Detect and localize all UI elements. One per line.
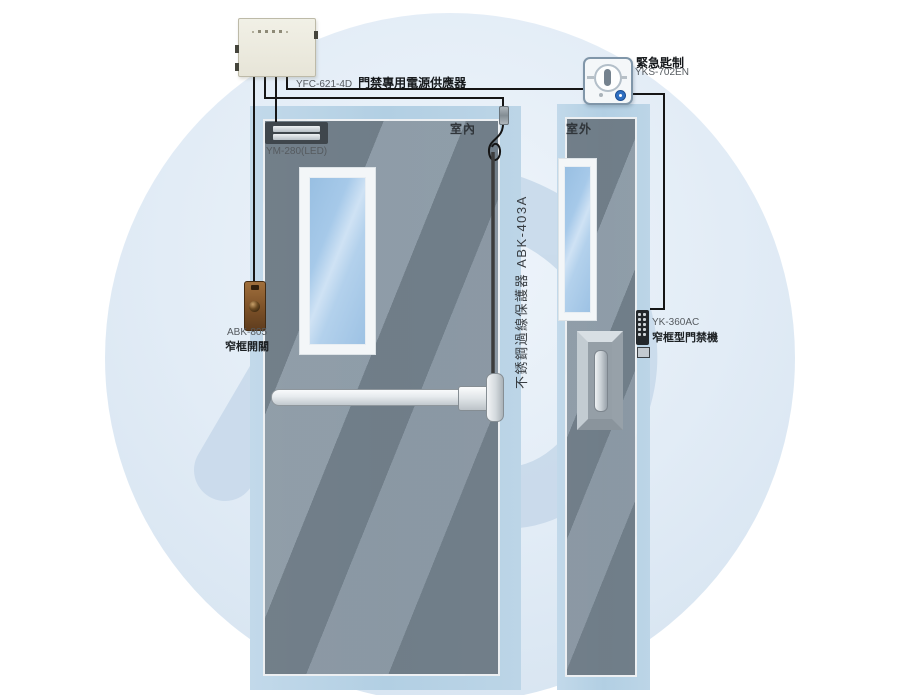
power-supply-name: 門禁專用電源供應器 bbox=[358, 74, 466, 91]
panic-bar-end-plate bbox=[486, 373, 504, 422]
maglock-armature-stripe bbox=[273, 134, 320, 140]
exit-button-device bbox=[244, 281, 266, 331]
access-control-diagram: 室內 室外 YM-280(LED) ABK-805 窄框開關 bbox=[0, 0, 900, 695]
exit-button-slot bbox=[251, 285, 259, 290]
keypad-model-label: YK-360AC bbox=[652, 317, 699, 328]
exit-button-knob bbox=[249, 301, 260, 312]
keypad-base bbox=[637, 347, 650, 358]
mount-tab bbox=[314, 31, 318, 39]
dial-side-mark bbox=[587, 76, 594, 79]
mount-tab bbox=[235, 45, 239, 53]
emergency-switch-device bbox=[583, 57, 633, 105]
panic-bar bbox=[271, 389, 469, 406]
maglock-model-label: YM-280(LED) bbox=[266, 146, 327, 157]
mount-tab bbox=[235, 63, 239, 71]
dial-side-mark bbox=[620, 76, 627, 79]
exit-button-name-label: 窄框開關 bbox=[219, 338, 275, 354]
exit-button-model-label: ABK-805 bbox=[222, 327, 272, 338]
emergency-switch-model-label: YKS-702EN bbox=[635, 67, 689, 78]
key-cylinder bbox=[604, 69, 611, 86]
power-supply-label: YFC-621-4D 門禁專用電源供應器 bbox=[296, 74, 466, 91]
keypad-name-label: 窄框型門禁機 bbox=[652, 329, 718, 345]
cable-connector bbox=[499, 106, 509, 125]
keypad-device bbox=[636, 310, 649, 345]
maglock-armature-stripe bbox=[273, 126, 320, 132]
cable-protector-label: 不銹鋼過線保護器 ABK-403A bbox=[511, 195, 530, 389]
cable-loop bbox=[489, 122, 503, 160]
power-supply-model: YFC-621-4D bbox=[296, 79, 352, 90]
wire-keypad bbox=[633, 94, 664, 309]
maglock-device bbox=[265, 122, 328, 144]
led-dot bbox=[599, 93, 603, 97]
power-supply-led-indicators bbox=[252, 30, 288, 33]
power-supply-unit bbox=[238, 18, 316, 77]
wiring-overlay bbox=[0, 0, 900, 695]
reset-button bbox=[615, 90, 626, 101]
